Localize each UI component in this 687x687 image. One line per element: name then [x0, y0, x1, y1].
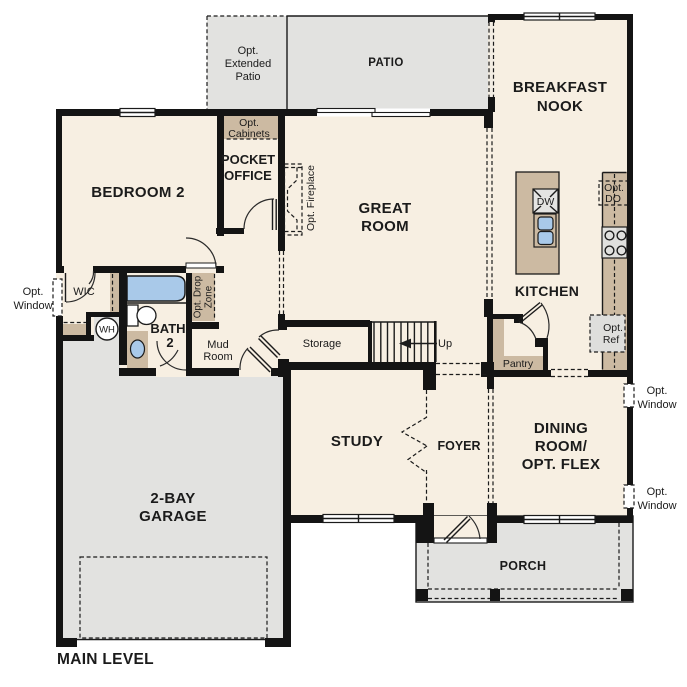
- svg-text:Window: Window: [637, 500, 676, 512]
- svg-text:2: 2: [166, 335, 173, 350]
- svg-text:GARAGE: GARAGE: [139, 508, 207, 525]
- svg-text:Pantry: Pantry: [503, 358, 534, 370]
- svg-text:Opt.: Opt.: [647, 486, 668, 498]
- svg-text:PATIO: PATIO: [368, 57, 403, 69]
- svg-text:Opt. Fireplace: Opt. Fireplace: [305, 165, 317, 231]
- svg-text:Ref: Ref: [603, 334, 619, 346]
- svg-text:BATH: BATH: [150, 321, 185, 336]
- svg-text:Cabinets: Cabinets: [228, 128, 269, 140]
- svg-text:FOYER: FOYER: [437, 439, 480, 453]
- svg-text:Room: Room: [203, 351, 232, 363]
- svg-text:OPT. FLEX: OPT. FLEX: [522, 456, 601, 473]
- svg-text:DW: DW: [537, 196, 555, 208]
- svg-text:Opt. Drop: Opt. Drop: [193, 275, 204, 318]
- svg-text:DO: DO: [605, 193, 621, 205]
- svg-text:ROOM: ROOM: [361, 218, 409, 235]
- svg-text:Up: Up: [438, 338, 452, 350]
- svg-text:Opt.: Opt.: [647, 385, 668, 397]
- svg-text:NOOK: NOOK: [537, 98, 583, 115]
- svg-text:Opt.: Opt.: [23, 286, 44, 298]
- svg-text:MAIN LEVEL: MAIN LEVEL: [57, 651, 154, 668]
- svg-text:BREAKFAST: BREAKFAST: [513, 79, 607, 96]
- svg-text:Opt.: Opt.: [603, 322, 623, 334]
- svg-text:WIC: WIC: [73, 286, 94, 298]
- svg-text:POCKET: POCKET: [221, 152, 275, 167]
- svg-text:ROOM/: ROOM/: [535, 438, 588, 455]
- svg-text:Extended: Extended: [225, 58, 271, 70]
- svg-text:Patio: Patio: [235, 71, 260, 83]
- svg-text:Opt.: Opt.: [238, 45, 259, 57]
- svg-text:Storage: Storage: [303, 338, 342, 350]
- svg-text:KITCHEN: KITCHEN: [515, 283, 579, 299]
- svg-text:BEDROOM 2: BEDROOM 2: [91, 184, 185, 201]
- svg-text:WH: WH: [99, 325, 115, 336]
- svg-text:GREAT: GREAT: [359, 200, 412, 217]
- svg-text:DINING: DINING: [534, 420, 588, 437]
- svg-text:OFFICE: OFFICE: [224, 168, 272, 183]
- svg-text:Window: Window: [637, 399, 676, 411]
- svg-text:STUDY: STUDY: [331, 433, 383, 450]
- svg-text:PORCH: PORCH: [500, 559, 547, 573]
- svg-text:2-BAY: 2-BAY: [150, 490, 195, 507]
- svg-text:Window: Window: [13, 300, 52, 312]
- svg-text:Zone: Zone: [204, 285, 215, 308]
- svg-text:Mud: Mud: [207, 339, 228, 351]
